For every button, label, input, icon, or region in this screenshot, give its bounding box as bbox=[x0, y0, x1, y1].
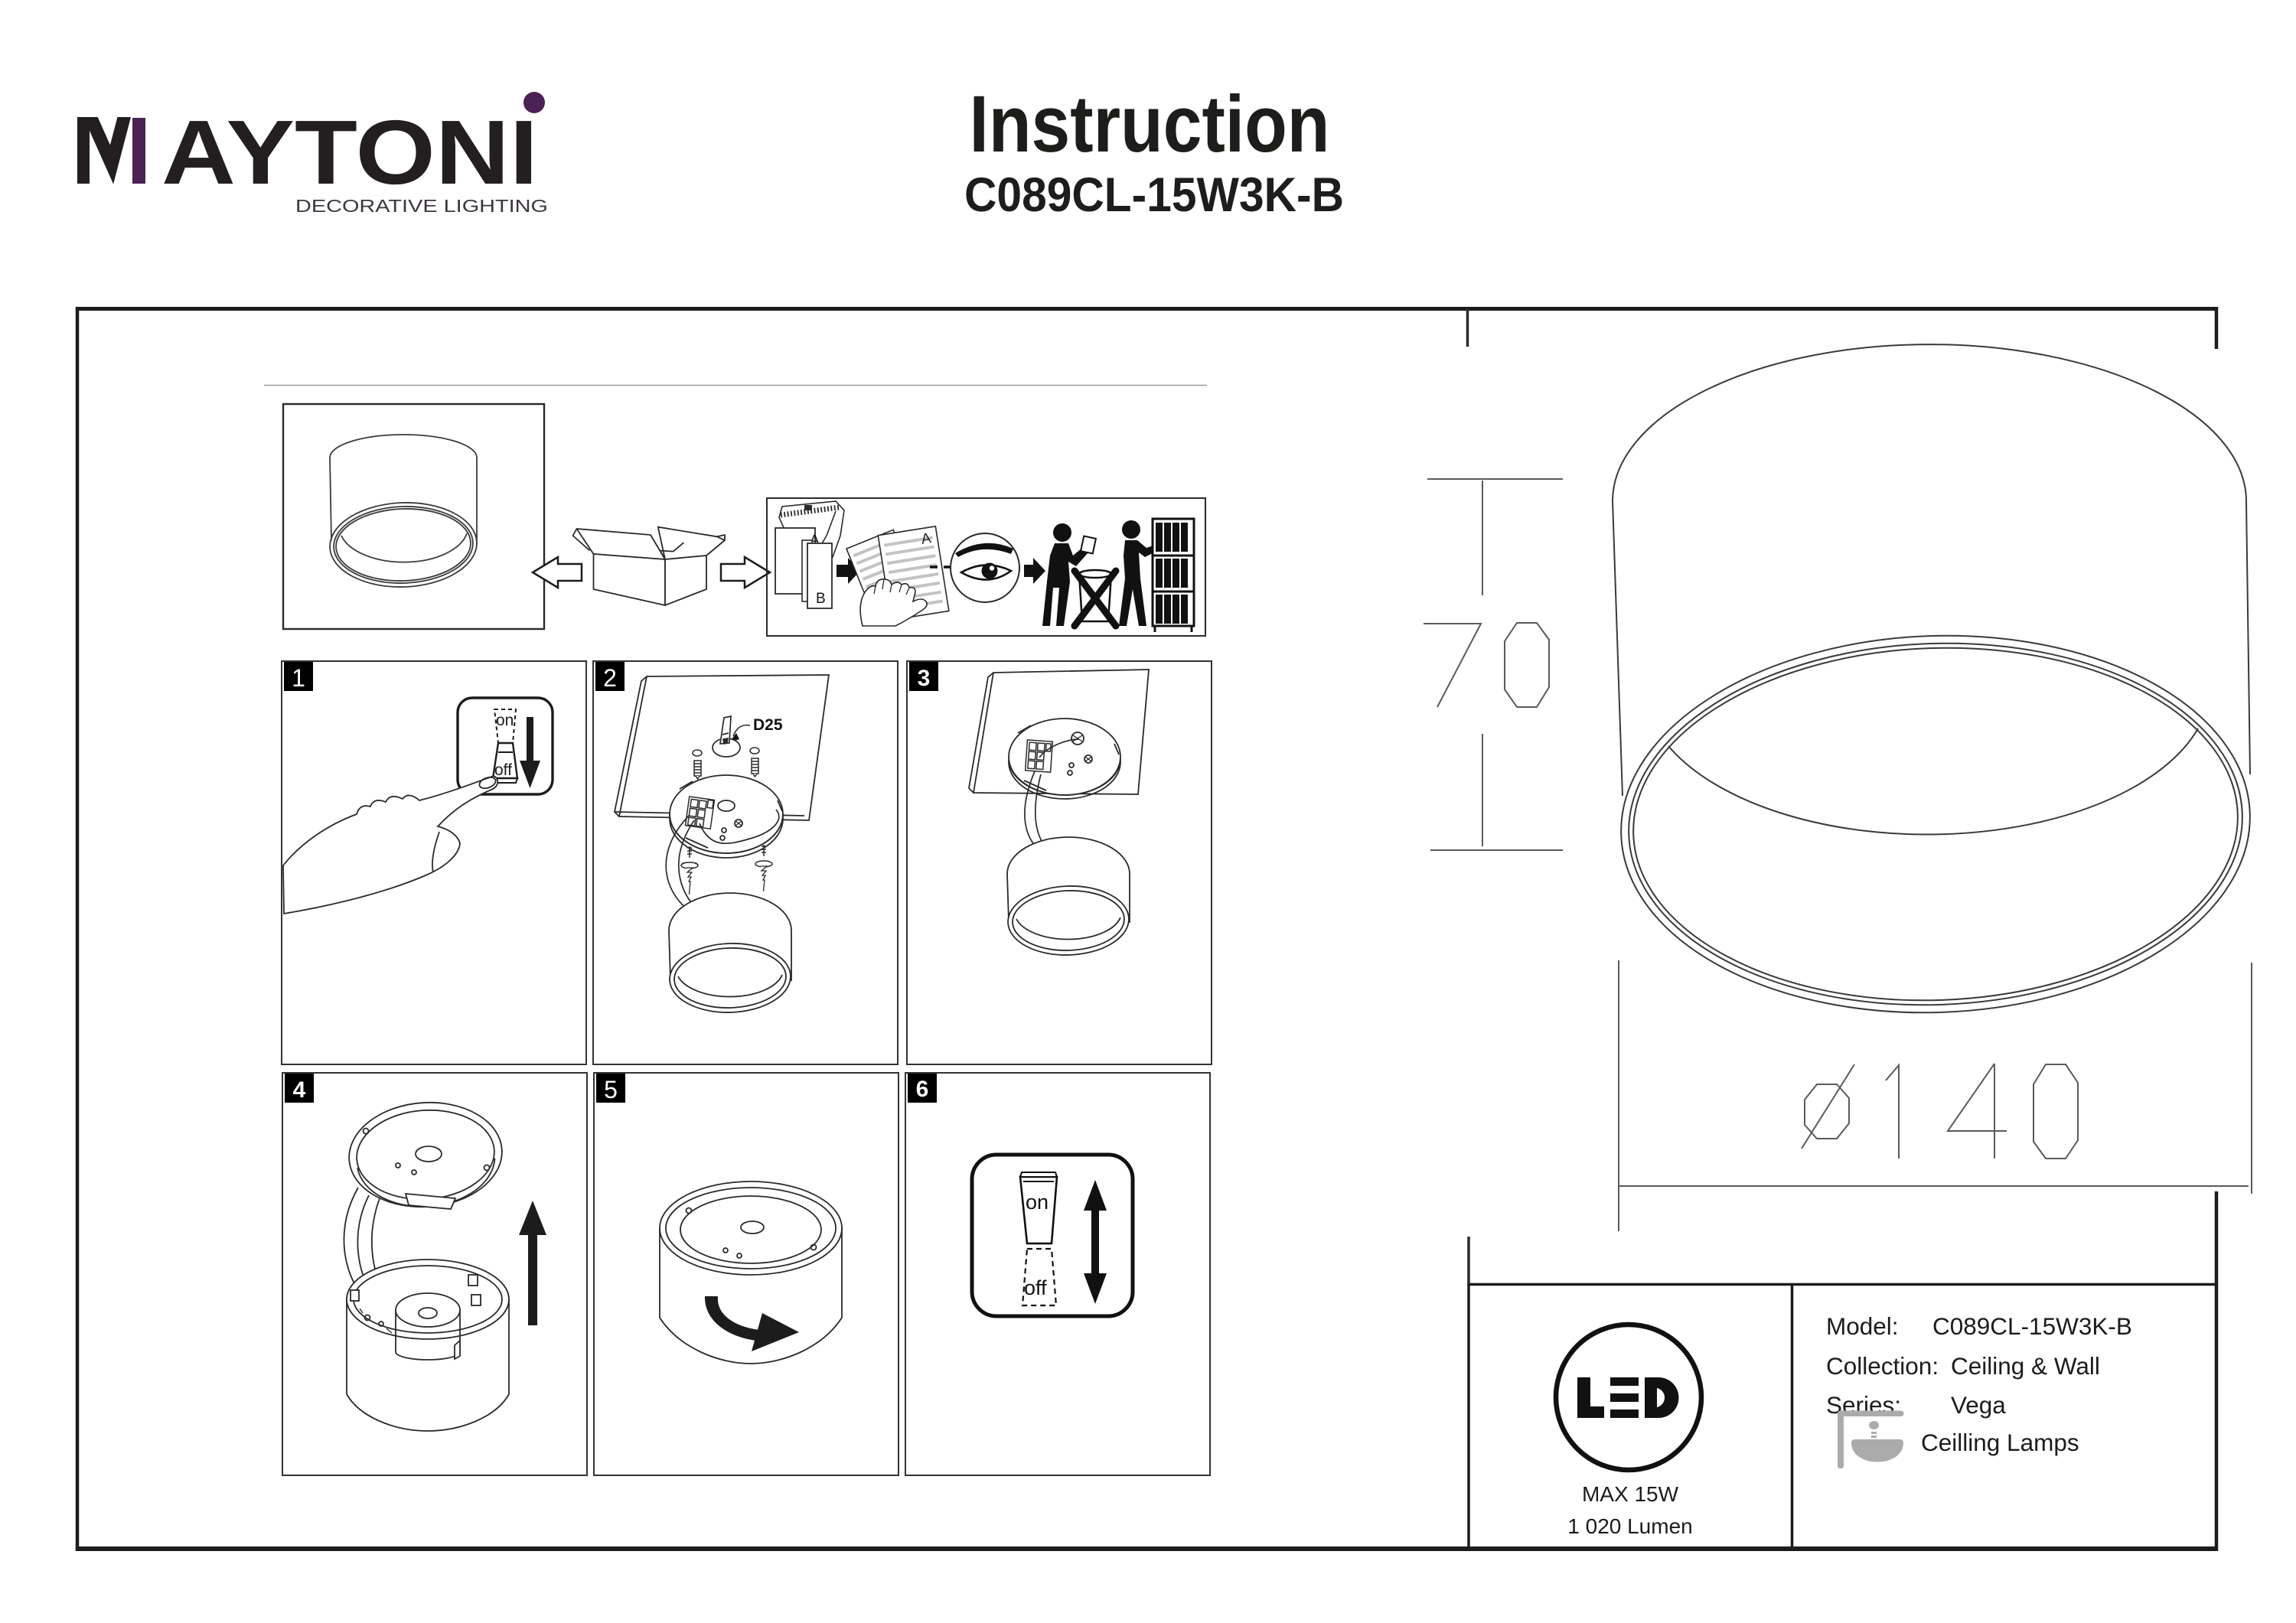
svg-text:1 020 Lumen: 1 020 Lumen bbox=[1567, 1514, 1692, 1538]
svg-text:Instruction: Instruction bbox=[970, 80, 1330, 169]
svg-text:off: off bbox=[494, 761, 512, 779]
svg-text:Model:: Model: bbox=[1826, 1312, 1899, 1340]
svg-text:2: 2 bbox=[603, 664, 617, 692]
svg-text:Vega: Vega bbox=[1951, 1391, 2006, 1419]
svg-text:1: 1 bbox=[292, 664, 305, 692]
svg-text:Collection:: Collection: bbox=[1826, 1352, 1939, 1380]
svg-text:C089CL-15W3K-B: C089CL-15W3K-B bbox=[1932, 1312, 2132, 1340]
svg-text:Ceiling & Wall: Ceiling & Wall bbox=[1951, 1352, 2100, 1380]
svg-text:B: B bbox=[816, 591, 826, 607]
svg-text:off: off bbox=[1024, 1276, 1047, 1299]
svg-text:5: 5 bbox=[604, 1076, 618, 1103]
svg-text:Ceilling Lamps: Ceilling Lamps bbox=[1921, 1429, 2079, 1456]
svg-text:MAX 15W: MAX 15W bbox=[1582, 1482, 1679, 1506]
svg-text:3: 3 bbox=[918, 666, 931, 691]
svg-text:on: on bbox=[1026, 1191, 1049, 1214]
svg-text:D25: D25 bbox=[753, 716, 783, 734]
svg-text:C089CL-15W3K-B: C089CL-15W3K-B bbox=[964, 168, 1344, 222]
svg-text:AYTONI: AYTONI bbox=[161, 102, 538, 204]
svg-text:DECORATIVE LIGHTING: DECORATIVE LIGHTING bbox=[295, 196, 548, 216]
svg-text:6: 6 bbox=[916, 1077, 929, 1102]
svg-text:on: on bbox=[496, 712, 514, 729]
svg-text:4: 4 bbox=[293, 1077, 306, 1103]
